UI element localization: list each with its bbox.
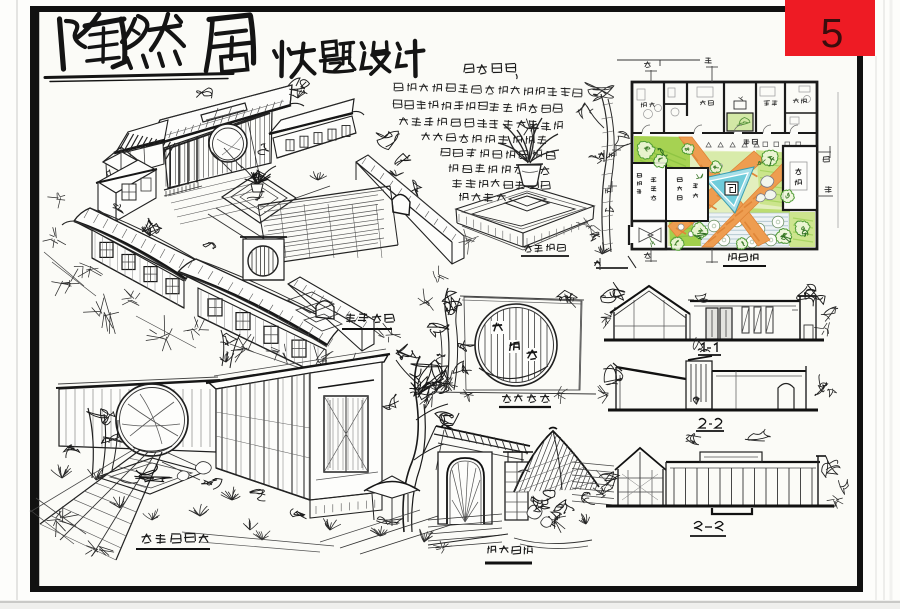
- svg-text:5: 5: [821, 10, 844, 56]
